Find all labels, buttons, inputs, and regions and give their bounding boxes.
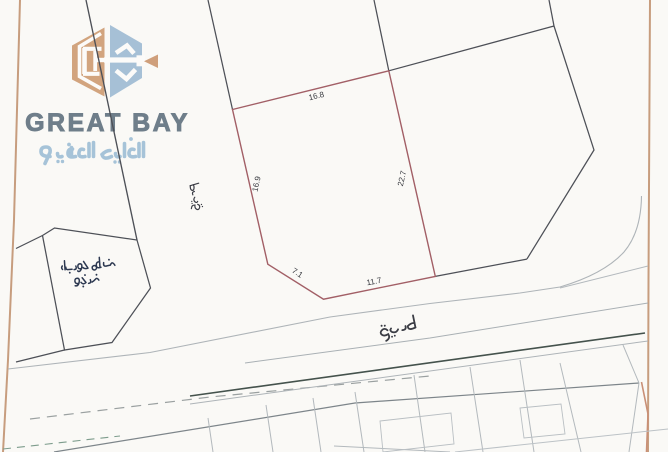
svg-text:GREAT BAY: GREAT BAY <box>25 109 190 137</box>
